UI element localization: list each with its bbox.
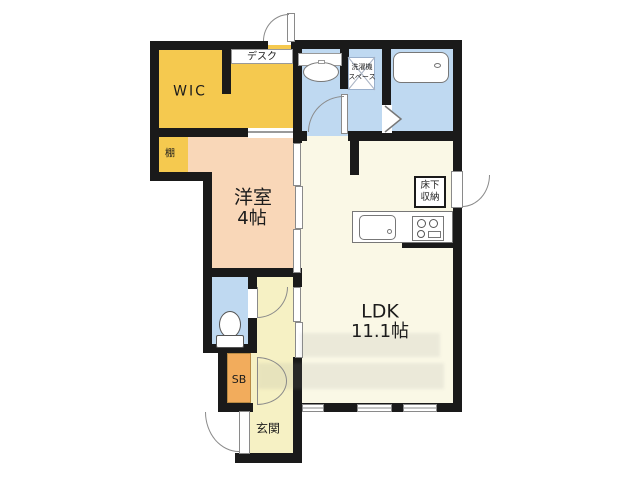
toilet-door-opening	[248, 289, 257, 318]
room-label-western-size: 4帖	[237, 209, 266, 229]
wall-segment	[248, 318, 257, 353]
toilet-bowl-icon	[219, 311, 241, 338]
vanity-faucet	[318, 60, 325, 64]
shelf-label: 棚	[165, 149, 175, 160]
wall-segment	[248, 273, 257, 289]
stove-burner	[417, 230, 425, 238]
wall-segment	[293, 131, 307, 141]
wic-opening	[248, 128, 298, 138]
wall-segment	[453, 207, 462, 412]
entrance-door-leaf	[239, 411, 250, 454]
wall-segment	[150, 128, 248, 137]
wall-segment	[453, 40, 462, 172]
wall-segment	[291, 40, 462, 49]
wall-segment	[293, 272, 302, 287]
top-door-arc	[263, 14, 289, 41]
underfloor-storage-label-line1: 床下	[420, 181, 439, 191]
side-door-arc	[462, 175, 490, 207]
stove-grill	[428, 231, 441, 238]
room-label-wic: WIC	[173, 84, 207, 99]
toilet-tank-icon	[216, 335, 244, 348]
wall-segment	[222, 49, 231, 94]
room-label-western-name: 洋室	[234, 188, 272, 209]
window	[302, 404, 324, 412]
wic-opening-line	[248, 131, 298, 133]
window	[357, 404, 392, 412]
sliding-door-panel	[293, 287, 301, 322]
kitchen-faucet	[387, 229, 392, 234]
bathtub	[393, 52, 449, 83]
watermark	[258, 363, 444, 389]
wall-segment	[348, 131, 462, 141]
sliding-door-panel	[293, 143, 301, 186]
laundry-space-label-line1: 洗濯機	[352, 64, 373, 72]
entrance-door-arc	[205, 412, 239, 452]
entrance-label: 玄関	[256, 422, 280, 435]
wall-segment	[350, 141, 359, 175]
sliding-door-panel	[295, 186, 303, 229]
bathroom-folding-door-icon	[384, 106, 404, 132]
room-western-floor-upper	[188, 133, 298, 177]
bathtub-drain	[434, 63, 441, 68]
vanity-sink	[303, 62, 339, 82]
floorplan: WIC デスク 棚 洋室 4帖 LDK 11.1帖 洗濯機 スペース 床下 収納…	[0, 0, 640, 480]
wall-segment	[382, 40, 391, 107]
stove-burner	[429, 219, 438, 228]
room-label-ldk-name: LDK	[361, 302, 399, 323]
desk-label: デスク	[247, 52, 277, 63]
laundry-space-label-line2: スペース	[348, 74, 375, 82]
sliding-door-panel	[293, 229, 301, 273]
wall-segment	[150, 41, 159, 181]
room-label-ldk-size: 11.1帖	[351, 322, 409, 342]
window	[403, 404, 437, 412]
wall-segment	[203, 172, 212, 353]
underfloor-storage-label-line2: 収納	[420, 193, 439, 203]
shoe-box-label: SB	[232, 374, 247, 386]
wall-segment	[235, 453, 302, 463]
stove-burner	[417, 219, 426, 228]
kitchen-sink	[359, 215, 396, 240]
